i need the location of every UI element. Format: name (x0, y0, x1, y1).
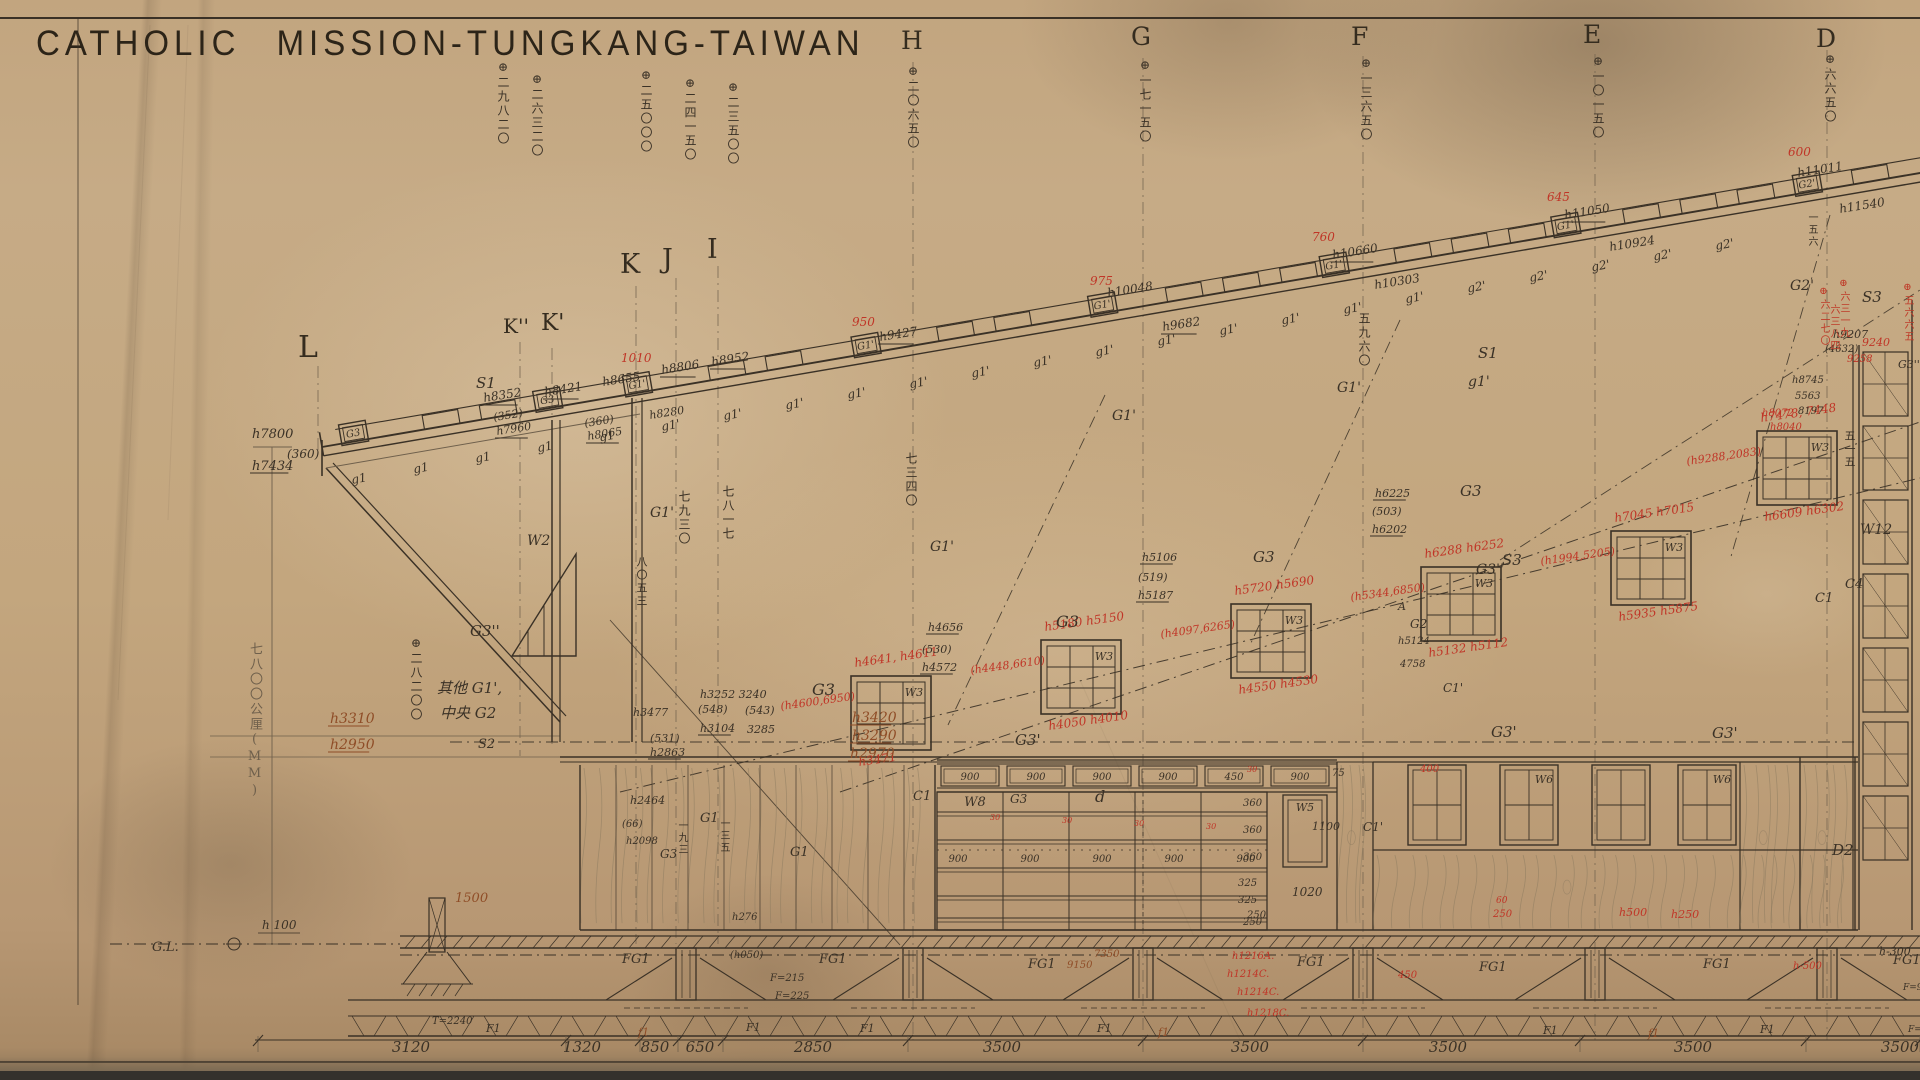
annotation: h10924 (1608, 233, 1656, 254)
path (770, 768, 776, 923)
line (1477, 936, 1487, 948)
annotation: 30 (1062, 816, 1072, 825)
line (581, 936, 591, 948)
line (1749, 936, 1759, 948)
red-dim: h6288 h6252 (1423, 536, 1505, 561)
annotation: 9240 (1862, 336, 1890, 349)
annotation: G3'' (470, 622, 500, 640)
annotation: h3252 3240 (700, 688, 767, 701)
purlin (937, 321, 975, 341)
line (1109, 936, 1119, 948)
line (1077, 936, 1087, 948)
bottom-dimension: 3500 (1429, 1038, 1468, 1056)
annotation: 3285 (747, 723, 775, 736)
path (1783, 765, 1789, 923)
line (1496, 1016, 1508, 1036)
line (396, 1016, 408, 1036)
clerestory-dim: 900 (960, 772, 980, 783)
foundation-post (676, 948, 696, 1000)
annotation: h2098 (626, 836, 658, 847)
purlin-label: g2' (1528, 268, 1549, 285)
purlin-label: g1' (784, 395, 805, 412)
line (1694, 1016, 1706, 1036)
line (821, 936, 831, 948)
line (485, 936, 495, 948)
purlin-label: g2' (1590, 257, 1611, 274)
pile-label: F1 (1759, 1023, 1775, 1036)
line (352, 1016, 364, 1036)
line (1621, 936, 1631, 948)
line (1429, 936, 1439, 948)
grid-letter-Kpp: K'' (503, 314, 529, 338)
bottom-dimension: 3500 (1881, 1038, 1920, 1056)
annotation: h5106 (1142, 551, 1177, 564)
line (447, 952, 471, 984)
line (1515, 958, 1581, 1000)
path (878, 768, 884, 923)
window-type-w3: W3 (1285, 614, 1303, 627)
path (822, 768, 828, 923)
line (629, 936, 639, 948)
purlin (1508, 223, 1546, 243)
annotation: T=2240 (432, 1016, 473, 1027)
line (1637, 936, 1647, 948)
footing-label: FG1 (1702, 957, 1731, 972)
annotation: h2863 (650, 746, 685, 759)
path (1599, 855, 1605, 928)
annotation: 450 (1397, 970, 1418, 981)
line (677, 936, 687, 948)
annotation: h10660 (1331, 241, 1379, 262)
footing-label: FG1 (1027, 957, 1056, 972)
purlin-label: g1' (908, 374, 929, 391)
window-type-w3: W3 (1095, 650, 1113, 663)
panel-dim: 900 (1020, 854, 1040, 865)
bottom-dimension: 1320 (563, 1038, 602, 1056)
line (620, 478, 1920, 792)
annotation: d (1095, 787, 1105, 806)
line (661, 936, 671, 948)
line (946, 1016, 958, 1036)
path (1391, 855, 1397, 928)
line (1298, 1016, 1310, 1036)
girder-box-label: G3 (345, 427, 361, 440)
grid-letter-H: H (901, 26, 923, 55)
purlin-label: g1 (474, 449, 492, 465)
path (1800, 765, 1806, 923)
line (726, 1016, 738, 1036)
line (549, 936, 559, 948)
annotation: G1' (1112, 408, 1136, 424)
elevation-column: ⊕一〇一五〇 (1592, 54, 1604, 140)
panel-dim: 900 (948, 854, 968, 865)
wood-knot (1563, 880, 1571, 894)
purlin (1737, 184, 1775, 204)
annotation: h276 (732, 912, 758, 923)
line (501, 936, 511, 948)
annotation: C1' (1443, 681, 1463, 695)
path (1648, 855, 1654, 928)
annotation: 600 (1788, 145, 1811, 159)
path (1758, 855, 1764, 928)
elevation-column: ⊕六六五〇 (1824, 52, 1836, 124)
annotation: G1 (790, 845, 809, 860)
line (1848, 1016, 1860, 1036)
annotation: h-500 (1793, 961, 1823, 972)
annotation: 8197 (1798, 406, 1824, 417)
annotation: G3 (812, 680, 835, 699)
annotation: 30 (1206, 822, 1216, 831)
line (1870, 1016, 1882, 1036)
annotation: 400 (1419, 764, 1440, 775)
purlin-label: g1' (846, 385, 867, 402)
line (1562, 1016, 1574, 1036)
line (1782, 1016, 1794, 1036)
line (613, 936, 623, 948)
annotation: 1010 (621, 351, 652, 365)
annotation: G3 (1253, 548, 1275, 566)
annotation: G3' (1712, 724, 1738, 742)
line (506, 1016, 518, 1036)
bottom-dimension: 2850 (793, 1038, 833, 1056)
line (725, 936, 735, 948)
line (682, 1016, 694, 1036)
line (805, 936, 815, 948)
annotation: C1' (1363, 820, 1383, 834)
purlin-label: g1 (412, 460, 430, 476)
annotation: h2464 (630, 794, 665, 807)
annotation: 760 (1312, 230, 1335, 244)
elevation-column: ⊕一七一五〇 (1139, 58, 1151, 144)
annotation: G3 (660, 847, 678, 861)
line (453, 936, 463, 948)
red-dim: h5935 h5875 (1617, 599, 1699, 624)
vertical-dimension: 七九三〇 (678, 490, 690, 546)
bottom-dimension: 3120 (392, 1038, 431, 1056)
annotation: 5563 (1795, 391, 1820, 402)
annotation: D2 (1831, 841, 1854, 859)
purlin-label: g1 (536, 438, 554, 454)
path (1752, 765, 1758, 923)
footing-label: FG1 (1478, 960, 1507, 975)
line (1605, 936, 1615, 948)
path (688, 768, 694, 923)
annotation: 325 (1238, 895, 1257, 906)
path (1789, 855, 1795, 928)
purlin (1165, 282, 1203, 302)
line (660, 1016, 672, 1036)
path (1568, 855, 1574, 928)
annotation: h-300 (1879, 945, 1911, 958)
annotation: 7350 (1094, 949, 1120, 960)
annotation: 645 (1547, 190, 1570, 204)
line (455, 984, 463, 996)
footing-label: FG1 (818, 952, 847, 967)
annotation: h11540 (1838, 195, 1886, 216)
elevation-column: ⊕二四一五〇 (684, 76, 696, 162)
window-type-w6: W6 (1713, 773, 1731, 786)
line (1221, 936, 1231, 948)
line (517, 936, 527, 948)
path (1581, 855, 1587, 928)
annotation: S1 (1478, 344, 1498, 362)
line (1518, 1016, 1530, 1036)
line (968, 1016, 980, 1036)
annotation: 4758 (1399, 659, 1425, 670)
annotation: h8421 (543, 379, 583, 399)
annotation: h5124 (1398, 636, 1430, 647)
line (1408, 1016, 1420, 1036)
line (1269, 936, 1279, 948)
line (700, 958, 766, 1000)
line (949, 936, 959, 948)
line (1317, 936, 1327, 948)
annotation: h250 (1671, 908, 1699, 921)
line (965, 936, 975, 948)
vertical-dimension: 五九六〇 (1358, 312, 1370, 368)
line (1609, 958, 1675, 1000)
path (1520, 855, 1526, 928)
window-type-w3: W3 (905, 686, 923, 699)
line (1381, 936, 1391, 948)
annotation: h2950 (330, 737, 375, 753)
line (990, 1016, 1002, 1036)
path (729, 768, 735, 923)
pile-label: F1 (485, 1022, 501, 1035)
annotation: h9682 (1161, 314, 1201, 334)
line (405, 936, 415, 948)
line (981, 936, 991, 948)
line (1653, 936, 1663, 948)
line (1781, 936, 1791, 948)
annotation: h4656 (928, 621, 963, 634)
elevation-column: ⊕一三六五〇 (1360, 56, 1372, 142)
line (704, 1016, 716, 1036)
annotation: 60 (1496, 896, 1508, 906)
line (1525, 936, 1535, 948)
path (1727, 855, 1733, 928)
path (1532, 855, 1538, 928)
line (1493, 936, 1503, 948)
line (1333, 936, 1343, 948)
annotation: G3'' (1476, 562, 1504, 578)
vertical-dimension: ⊕五六六五 (1902, 282, 1912, 343)
purlin (1280, 263, 1318, 283)
line (1122, 1016, 1134, 1036)
line (1386, 1016, 1398, 1036)
window-type-w8: W8 (964, 795, 986, 810)
purlin-label: g1' (1032, 353, 1053, 370)
line (565, 936, 575, 948)
line (773, 936, 783, 948)
line (693, 936, 703, 948)
line (814, 1016, 826, 1036)
photo-edge (0, 1071, 1920, 1080)
line (1474, 1016, 1486, 1036)
line (1765, 936, 1775, 948)
annotation: S3 (1502, 551, 1522, 569)
elevation-column: ⊕二〇六五〇 (907, 64, 919, 150)
grid-letter-G: G (1131, 22, 1151, 51)
annotation: A (1397, 600, 1406, 613)
annotation: (548) (698, 703, 728, 716)
elevation-column: ⊕二五〇〇〇 (640, 68, 652, 154)
line (374, 1016, 386, 1036)
annotation: S3 (1862, 288, 1882, 306)
line (840, 422, 1920, 792)
annotation: (503) (1372, 505, 1402, 518)
annotation: 其他 G1', (437, 679, 502, 697)
line (885, 936, 895, 948)
line (1342, 1016, 1354, 1036)
pile-label: F1 (745, 1021, 761, 1034)
bottom-dimension: 3500 (1674, 1038, 1713, 1056)
path (1337, 765, 1343, 923)
line (757, 936, 767, 948)
annotation: 360 (1243, 852, 1263, 863)
line (1125, 936, 1135, 948)
annotation: S1 (476, 374, 496, 392)
path (1453, 855, 1459, 928)
annotation: 325 (1238, 878, 1257, 889)
line (1430, 1016, 1442, 1036)
line (933, 936, 943, 948)
annotation: h2970 (850, 746, 895, 762)
annotation: F=225 (774, 991, 809, 1002)
annotation: h3290 (852, 728, 897, 744)
purlin-label: g1' (1404, 289, 1425, 306)
red-dim: h4550 h4530 (1237, 672, 1319, 697)
path (1771, 765, 1777, 923)
annotation: h9427 (878, 324, 918, 344)
line (1716, 1016, 1728, 1036)
line (917, 936, 927, 948)
line (1584, 1016, 1596, 1036)
path (580, 768, 586, 923)
line (770, 1016, 782, 1036)
line (1365, 936, 1375, 948)
line (1509, 936, 1519, 948)
annotation: 250 (1492, 909, 1513, 920)
path (1359, 765, 1365, 923)
elevation-column: ⊕二九八二〇 (497, 60, 509, 146)
annotation: S2 (478, 737, 495, 752)
line (407, 984, 415, 996)
purlin (1623, 204, 1661, 224)
annotation: 250 (1246, 910, 1267, 921)
annotation: h3420 (852, 710, 897, 726)
line (1301, 936, 1311, 948)
window-type-w3: W3 (1475, 577, 1493, 590)
red-dim: h4050 h4010 (1047, 708, 1129, 733)
grid-letter-E: E (1583, 20, 1601, 49)
pile-label-red: f1 (1647, 1027, 1659, 1040)
clerestory-dim: 900 (1290, 772, 1310, 783)
grid-letter-J: J (662, 244, 673, 275)
annotation: h1214C. (1237, 987, 1279, 998)
clerestory-dim: 900 (1158, 772, 1178, 783)
annotation: G1' (650, 505, 674, 521)
annotation: 950 (852, 315, 875, 329)
purlin (422, 410, 460, 430)
annotation: G1' (1337, 380, 1361, 396)
line (1141, 936, 1151, 948)
annotation: F=215 (769, 973, 804, 984)
pile-label: F1 (1096, 1022, 1112, 1035)
line (1413, 936, 1423, 948)
line (1685, 936, 1695, 948)
path (1550, 855, 1556, 928)
annotation: C1 (1815, 591, 1833, 606)
line (1349, 936, 1359, 948)
wood-knot (1818, 831, 1826, 845)
annotation: 中央 G2 (440, 704, 496, 722)
line (528, 1016, 540, 1036)
path (1422, 855, 1428, 928)
annotation: h8806 (660, 357, 700, 377)
line (1253, 936, 1263, 948)
purlin-label: g1' (970, 363, 991, 380)
line (1254, 1016, 1266, 1036)
vertical-dimension: 一五六 (1806, 212, 1816, 248)
path (847, 768, 853, 923)
path (1409, 855, 1415, 928)
purlin-label: g2' (1466, 278, 1487, 295)
line (741, 936, 751, 948)
annotation: h8280 (648, 404, 685, 422)
red-dim: h7045 h7015 (1613, 500, 1695, 525)
line (1826, 1016, 1838, 1036)
grid-letter-F: F (1351, 22, 1368, 51)
line (1445, 936, 1455, 948)
pile-label-red: f1 (1157, 1026, 1169, 1039)
annotation: h8040 (1770, 422, 1803, 433)
path (1471, 855, 1477, 928)
purlin (1222, 272, 1260, 292)
line (1461, 936, 1471, 948)
line (1285, 936, 1295, 948)
grid-letter-I: I (707, 234, 718, 265)
vertical-dimension: 八〇五三 (636, 556, 647, 608)
path (888, 768, 894, 923)
line (1188, 1016, 1200, 1036)
vertical-dimension: 五一五 (1844, 430, 1855, 469)
annotation: h7434 (252, 459, 293, 474)
purlin-label: g2' (1652, 246, 1673, 263)
line (572, 1016, 584, 1036)
line (1573, 936, 1583, 948)
purlin (1451, 233, 1489, 253)
elevation-column: ⊕二三五〇〇 (727, 80, 739, 166)
line (997, 936, 1007, 948)
red-dim: h6609 h6302 (1763, 499, 1845, 524)
window-type-w12: W12 (1860, 522, 1892, 538)
path (1740, 765, 1746, 923)
line (1861, 936, 1871, 948)
line (709, 936, 719, 948)
vertical-dimension: ⊕二八二〇〇 (410, 636, 422, 722)
annotation: G3 (1460, 482, 1482, 500)
path (704, 768, 710, 923)
line (1157, 936, 1167, 948)
annotation: 30 (1247, 765, 1257, 774)
line (469, 936, 479, 948)
bottom-dimension: 650 (686, 1038, 715, 1056)
annotation: h500 (1619, 906, 1647, 919)
footing-label: FG1 (621, 952, 650, 967)
line (1804, 1016, 1816, 1036)
purlin-label: g2' (1714, 236, 1735, 253)
